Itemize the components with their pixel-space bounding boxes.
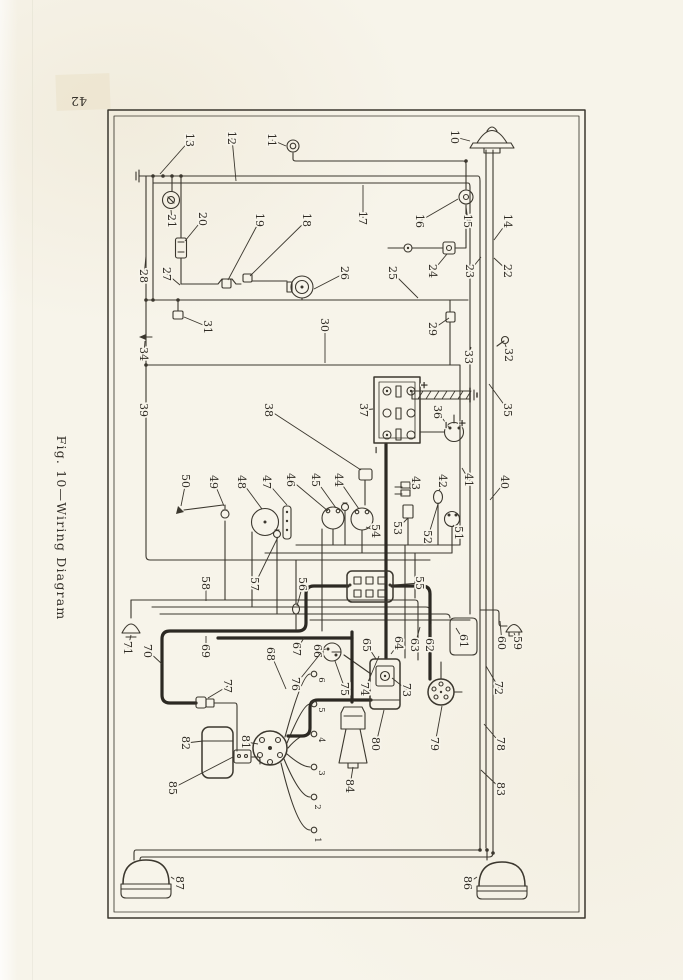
callout-16: 16 (413, 214, 426, 228)
terminal-label-5: 5 (316, 707, 326, 712)
terminal-label-4: 4 (316, 737, 326, 742)
callout-13: 13 (183, 133, 196, 147)
headlamp-right (477, 862, 527, 899)
fuse-holder (176, 238, 187, 258)
horn (287, 276, 313, 298)
figure-caption: Fig. 10—Wiring Diagram (54, 436, 69, 621)
instrument-cluster (176, 503, 373, 539)
connector-32 (502, 337, 509, 344)
terminal-50-icon (176, 506, 184, 514)
wire-horn-row (181, 279, 302, 300)
wiring-diagram-figure: 42 Fig. 10—Wiring Diagram (0, 0, 683, 980)
bulb-42 (434, 491, 443, 504)
callout-36: 36 (431, 405, 444, 419)
callout-28: 28 (137, 269, 150, 283)
callout-30: 30 (318, 318, 331, 332)
terminal-label-3: 3 (316, 770, 326, 775)
pillar-lamp (459, 190, 473, 204)
connector-19 (222, 279, 231, 288)
callout-86: 86 (461, 876, 474, 890)
callout-69: 69 (199, 644, 212, 658)
callout-63: 63 (408, 638, 421, 652)
callout-10: 10 (448, 130, 461, 144)
panel-lamp-switch (163, 192, 180, 209)
wire-77-85-link (214, 703, 260, 764)
callout-60: 60 (495, 636, 508, 650)
polarity-mark-0: + (418, 381, 429, 389)
lighter-51 (445, 512, 460, 527)
scanned-manual-page: { "page": { "number": "42", "caption": "… (0, 0, 683, 980)
terminal-label-1: 1 (312, 837, 322, 842)
callout-56: 56 (296, 577, 309, 591)
callout-65: 65 (360, 638, 373, 652)
callout-17: 17 (356, 211, 369, 225)
callout-79: 79 (428, 737, 441, 751)
headlamp-left (121, 860, 171, 898)
callout-18: 18 (300, 213, 313, 227)
connector-29 (446, 312, 455, 322)
callout-42: 42 (436, 474, 449, 488)
distributor (253, 731, 287, 765)
callout-48: 48 (235, 475, 248, 489)
callout-40: 40 (498, 475, 511, 489)
switch-53 (403, 505, 413, 518)
terminal-end-icon (136, 170, 139, 182)
callout-71: 71 (121, 641, 134, 655)
callout-35: 35 (501, 403, 514, 417)
callout-25: 25 (386, 266, 399, 280)
callout-22: 22 (501, 264, 514, 278)
callout-58: 58 (199, 576, 212, 590)
callout-27: 27 (160, 267, 173, 281)
wire-79-stubs (441, 662, 462, 692)
callout-53: 53 (391, 521, 404, 535)
callout-85: 85 (166, 781, 179, 795)
callout-52: 52 (421, 530, 434, 544)
wire-headlamp-bus-1 (134, 850, 480, 860)
callout-23: 23 (463, 264, 476, 278)
callout-38: 38 (262, 403, 275, 417)
wire-32-stub (497, 341, 504, 346)
callout-44: 44 (332, 473, 345, 487)
terminal-label-2: 2 (312, 804, 322, 809)
grommet (287, 140, 299, 152)
callout-15: 15 (461, 214, 474, 228)
terminal-34-icon (139, 334, 146, 340)
callout-77: 77 (221, 679, 234, 693)
spark-plug (339, 707, 367, 768)
spark-wire-1 (281, 763, 310, 830)
callout-87: 87 (173, 876, 186, 890)
callout-14: 14 (501, 214, 514, 228)
terminal-label-6: 6 (316, 677, 326, 682)
callout-34: 34 (137, 347, 150, 361)
callout-70: 70 (141, 644, 154, 658)
multi-pin-connector (428, 679, 454, 705)
wire-headlamp-bus-2 (140, 853, 493, 860)
wire-lamp15-feed (388, 205, 466, 248)
polarity-mark-2: − (440, 421, 451, 429)
callout-43: 43 (409, 476, 422, 490)
callout-83: 83 (494, 782, 507, 796)
callout-61: 61 (457, 634, 470, 648)
callout-55: 55 (413, 576, 426, 590)
callout-64: 64 (392, 636, 405, 650)
callout-41: 41 (462, 473, 475, 487)
callout-81: 81 (239, 735, 252, 749)
callout-12: 12 (225, 131, 238, 145)
wire-harness (122, 150, 507, 860)
callout-46: 46 (284, 473, 297, 487)
callout-19: 19 (253, 213, 266, 227)
callout-50: 50 (179, 474, 192, 488)
page-number: 42 (71, 94, 87, 109)
callout-32: 32 (502, 348, 515, 362)
figure-border (108, 110, 585, 918)
polarity-mark-3: − (370, 446, 381, 454)
callout-11: 11 (265, 133, 278, 147)
border-outer (108, 110, 585, 918)
callout-62: 62 (423, 638, 436, 652)
callout-59: 59 (511, 636, 524, 650)
callout-72: 72 (492, 681, 505, 695)
callout-leader (250, 220, 307, 276)
callout-leader (173, 757, 233, 788)
connector-31 (173, 311, 183, 319)
callout-39: 39 (137, 403, 150, 417)
callout-29: 29 (426, 322, 439, 336)
callout-26: 26 (338, 266, 351, 280)
callout-73: 73 (400, 683, 413, 697)
wire-50-run (184, 505, 225, 510)
coil-to-distributor-cable (288, 700, 371, 736)
callout-67: 67 (290, 642, 303, 656)
lamp-59 (506, 625, 522, 637)
beam-indicator-lamp (122, 600, 140, 637)
callout-82: 82 (179, 736, 192, 750)
callout-31: 31 (201, 320, 214, 334)
callout-37: 37 (357, 403, 370, 417)
callout-57: 57 (248, 577, 261, 591)
plug-85 (234, 750, 251, 763)
wire-bus-300 (146, 300, 468, 365)
callout-76: 76 (289, 677, 302, 691)
callout-47: 47 (260, 475, 273, 489)
callout-54: 54 (369, 524, 382, 538)
connector-38 (359, 469, 372, 480)
spark-wire-2 (284, 759, 310, 797)
callout-leader (269, 410, 361, 470)
callout-74: 74 (358, 682, 371, 696)
wire-grommet-run (293, 153, 466, 189)
inline-connector-56 (293, 604, 300, 614)
callout-78: 78 (494, 737, 507, 751)
callout-49: 49 (207, 475, 220, 489)
callout-66: 66 (311, 644, 324, 658)
callout-45: 45 (309, 473, 322, 487)
callout-80: 80 (369, 737, 382, 751)
junction-connector-77 (196, 697, 214, 708)
callout-75: 75 (338, 682, 351, 696)
callout-33: 33 (462, 350, 475, 364)
callout-51: 51 (452, 526, 465, 540)
callout-84: 84 (343, 779, 356, 793)
junction-dots (144, 159, 495, 855)
wire-dome-pair (486, 150, 493, 853)
callout-68: 68 (264, 647, 277, 661)
callout-21: 21 (165, 214, 178, 228)
dome-light (470, 127, 514, 153)
spark-wire-3 (287, 754, 310, 767)
callout-20: 20 (196, 212, 209, 226)
callout-24: 24 (426, 264, 439, 278)
gauge-45 (322, 507, 344, 529)
polarity-mark-1: + (456, 419, 467, 427)
